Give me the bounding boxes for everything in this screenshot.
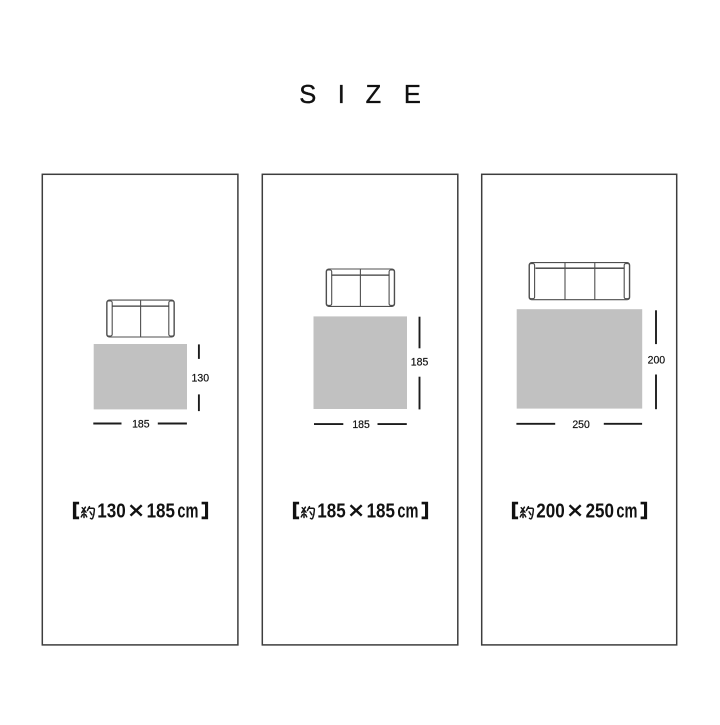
svg-text:130: 130 [192, 373, 210, 385]
svg-text:250: 250 [572, 419, 590, 431]
svg-text:185: 185 [147, 501, 175, 523]
svg-text:I: I [338, 81, 345, 109]
svg-text:185: 185 [132, 418, 150, 430]
svg-text:cm: cm [616, 501, 637, 523]
svg-text:185: 185 [352, 419, 370, 431]
svg-text:250: 250 [586, 501, 614, 523]
svg-text:185: 185 [317, 501, 345, 523]
svg-text:Z: Z [366, 81, 382, 109]
svg-text:S: S [299, 81, 316, 109]
svg-text:130: 130 [97, 501, 125, 523]
svg-text:E: E [404, 81, 421, 109]
svg-text:200: 200 [536, 501, 564, 523]
svg-text:185: 185 [367, 501, 395, 523]
svg-text:cm: cm [397, 501, 418, 523]
svg-text:185: 185 [411, 357, 429, 369]
svg-text:cm: cm [177, 501, 198, 523]
svg-text:200: 200 [648, 355, 666, 367]
